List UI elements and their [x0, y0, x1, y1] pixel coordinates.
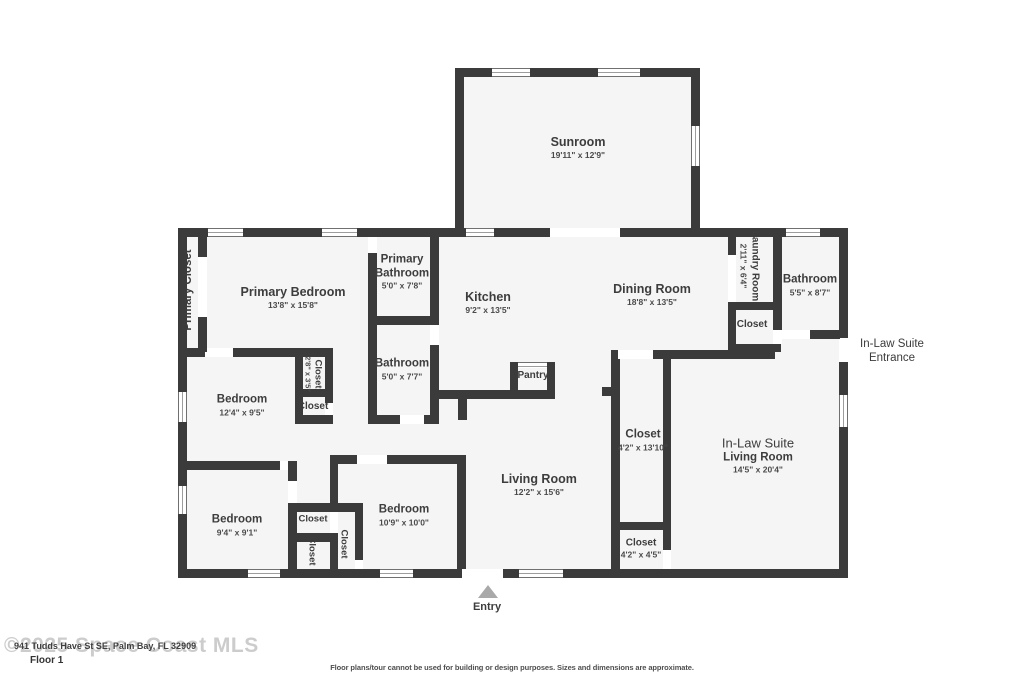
wall [355, 503, 363, 560]
wall [839, 362, 848, 395]
room-label-primary-bathroom: Primary Bathroom 5'0" x 7'8" [370, 254, 434, 293]
door-opening [462, 569, 503, 578]
wall [430, 345, 439, 423]
room-name: Closet [338, 529, 349, 558]
wall [728, 302, 775, 310]
room-name: Primary Bathroom [370, 254, 434, 281]
door-opening [839, 338, 848, 362]
window [248, 569, 280, 578]
room-dims: 13'8" x 15'8" [241, 300, 346, 311]
wall [494, 228, 550, 237]
room-label-inlaw-living: In-Law Suite Living Room 14'5" x 20'4" [722, 436, 794, 477]
window [839, 395, 848, 427]
room-dims: 2'8" x 3'5" [302, 356, 312, 392]
room-label-kitchen: Kitchen 9'2" x 13'5" [465, 290, 511, 316]
wall [330, 455, 357, 464]
room-label-primary-bedroom: Primary Bedroom 13'8" x 15'8" [241, 285, 346, 311]
room-dims: 10'9" x 10'0" [379, 517, 429, 528]
wall [178, 228, 208, 237]
room-label-laundry-room: Laundry Room 2'11" x 6'4" [737, 231, 760, 302]
room-label-living-room: Living Room 12'2" x 15'6" [501, 472, 577, 498]
wall [178, 569, 248, 578]
room-name: Pantry [517, 370, 548, 382]
door-opening [400, 415, 424, 424]
room-name: Dining Room [613, 282, 691, 297]
room-name: Primary Closet [182, 249, 196, 330]
room-dims: 5'0" x 7'7" [375, 371, 429, 382]
window [786, 228, 820, 237]
door-opening [280, 461, 288, 470]
wall [280, 569, 380, 578]
room-dims: 9'2" x 13'5" [465, 305, 511, 316]
floor-plan-page: { "rooms": { "sunroom": {"name": "Sunroo… [0, 0, 1024, 683]
wall [820, 228, 848, 237]
room-name: Bathroom [783, 273, 837, 287]
wall [457, 455, 466, 569]
window [208, 228, 243, 237]
room-name: Closet [298, 401, 329, 413]
wall [357, 228, 466, 237]
room-label-closet-hall-small: Closet 2'8" x 3'5" [302, 356, 323, 392]
room-name: Bathroom [375, 357, 429, 371]
wall [288, 503, 363, 512]
room-name: Laundry Room [749, 231, 761, 302]
door-opening [781, 330, 810, 339]
window [322, 228, 357, 237]
room-name: Closet [298, 513, 327, 524]
wall [503, 569, 519, 578]
room-dims: 19'11" x 12'9" [551, 150, 606, 161]
room-name: Closet [618, 428, 668, 442]
wall [178, 461, 280, 470]
room-label-bathroom-hall: Bathroom 5'0" x 7'7" [375, 357, 429, 382]
wall [611, 350, 618, 359]
wall [178, 348, 205, 357]
room-name: Closet [621, 537, 661, 549]
wall [330, 464, 338, 512]
property-address: 941 Tudds Have St SE, Palm Bay, FL 32909 [14, 641, 196, 651]
room-dims: 12'2" x 15'6" [501, 487, 577, 498]
wall [611, 359, 620, 578]
inlaw-entrance-label: In-Law Suite Entrance [860, 338, 924, 366]
room-label-bedroom-bottom: Bedroom 10'9" x 10'0" [379, 503, 429, 528]
room-dims: 5'0" x 7'8" [370, 281, 434, 292]
room-name: Living Room [722, 451, 794, 465]
disclaimer-text: Floor plans/tour cannot be used for buil… [330, 663, 694, 672]
wall [602, 387, 611, 396]
door-opening [728, 255, 736, 302]
window [518, 362, 547, 368]
room-dims: 4'2" x 13'10" [618, 442, 668, 453]
room-label-primary-closet: Primary Closet [182, 249, 196, 330]
window [519, 569, 563, 578]
room-name: Closet [306, 536, 317, 565]
door-opening [288, 481, 297, 503]
window [466, 228, 494, 237]
window [178, 392, 187, 422]
door-opening [550, 228, 620, 237]
inlaw-entrance-line2: Entrance [860, 352, 924, 366]
wall [198, 317, 207, 352]
wall [413, 569, 462, 578]
wall [728, 344, 781, 352]
room-label-closet-bl-v1: Closet [306, 536, 317, 565]
entry-label: Entry [473, 601, 501, 613]
wall [455, 77, 464, 228]
room-name: Bedroom [379, 503, 429, 517]
room-label-pantry: Pantry [517, 370, 548, 382]
inlaw-entrance-line1: In-Law Suite [860, 338, 924, 352]
room-dims: 18'8" x 13'5" [613, 297, 691, 308]
wall [611, 522, 670, 530]
room-suite-name: In-Law Suite [722, 436, 794, 452]
wall [330, 533, 338, 569]
door-opening [330, 512, 338, 533]
room-label-bedroom-bl: Bedroom 9'4" x 9'1" [212, 513, 262, 538]
wall [325, 357, 333, 403]
wall [458, 399, 467, 420]
room-label-laundry-closet: Closet [737, 319, 768, 331]
room-dims: 2'11" x 6'4" [737, 231, 748, 302]
room-dims: 4'2" x 4'5" [621, 549, 661, 560]
room-dims: 14'5" x 20'4" [722, 465, 794, 476]
room-name: Living Room [501, 472, 577, 487]
wall [295, 415, 333, 424]
wall [563, 569, 848, 578]
wall [387, 455, 466, 464]
wall [288, 461, 297, 481]
room-name: Closet [737, 319, 768, 331]
room-name: Sunroom [551, 135, 606, 150]
wall [438, 390, 555, 399]
room-label-closet-inlaw-tall: Closet 4'2" x 13'10" [618, 428, 668, 453]
room-label-closet-bl-h: Closet [298, 513, 327, 524]
room-label-sunroom: Sunroom 19'11" x 12'9" [551, 135, 606, 161]
wall [243, 228, 322, 237]
wall [728, 237, 736, 255]
room-label-dining-room: Dining Room 18'8" x 13'5" [613, 282, 691, 308]
door-opening [663, 550, 671, 570]
room-label-closet-hall: Closet [298, 401, 329, 413]
door-opening [773, 330, 782, 344]
room-name: Closet [312, 356, 323, 392]
door-opening [618, 350, 653, 359]
door-opening [355, 560, 363, 569]
door-opening [357, 455, 387, 464]
room-name: Bedroom [217, 393, 267, 407]
door-opening [198, 257, 207, 317]
window [598, 68, 640, 77]
room-dims: 9'4" x 9'1" [212, 527, 262, 538]
room-label-bathroom-inlaw: Bathroom 5'5" x 8'7" [783, 273, 837, 298]
room-label-closet-bl-v2: Closet [338, 529, 349, 558]
window [178, 486, 187, 514]
room-label-bedroom-mid: Bedroom 12'4" x 9'5" [217, 393, 267, 418]
room-label-closet-inlaw-small: Closet 4'2" x 4'5" [621, 537, 661, 560]
entry-arrow-icon [478, 585, 498, 598]
window [380, 569, 413, 578]
door-opening [368, 237, 377, 253]
room-name: Kitchen [465, 290, 511, 305]
wall [773, 237, 782, 330]
room-name: Primary Bedroom [241, 285, 346, 300]
wall [839, 237, 848, 338]
floor-plan-canvas: Sunroom 19'11" x 12'9" Primary Closet Pr… [0, 0, 1024, 683]
wall [368, 415, 400, 424]
wall [368, 316, 439, 325]
wall [620, 228, 786, 237]
room-dims: 5'5" x 8'7" [783, 287, 837, 298]
wall [839, 427, 848, 578]
wall [810, 330, 840, 339]
room-name: Bedroom [212, 513, 262, 527]
room-dims: 12'4" x 9'5" [217, 407, 267, 418]
wall [198, 237, 207, 257]
window [492, 68, 530, 77]
window [691, 126, 700, 166]
floor-number-label: Floor 1 [30, 655, 63, 666]
door-opening [205, 348, 233, 357]
